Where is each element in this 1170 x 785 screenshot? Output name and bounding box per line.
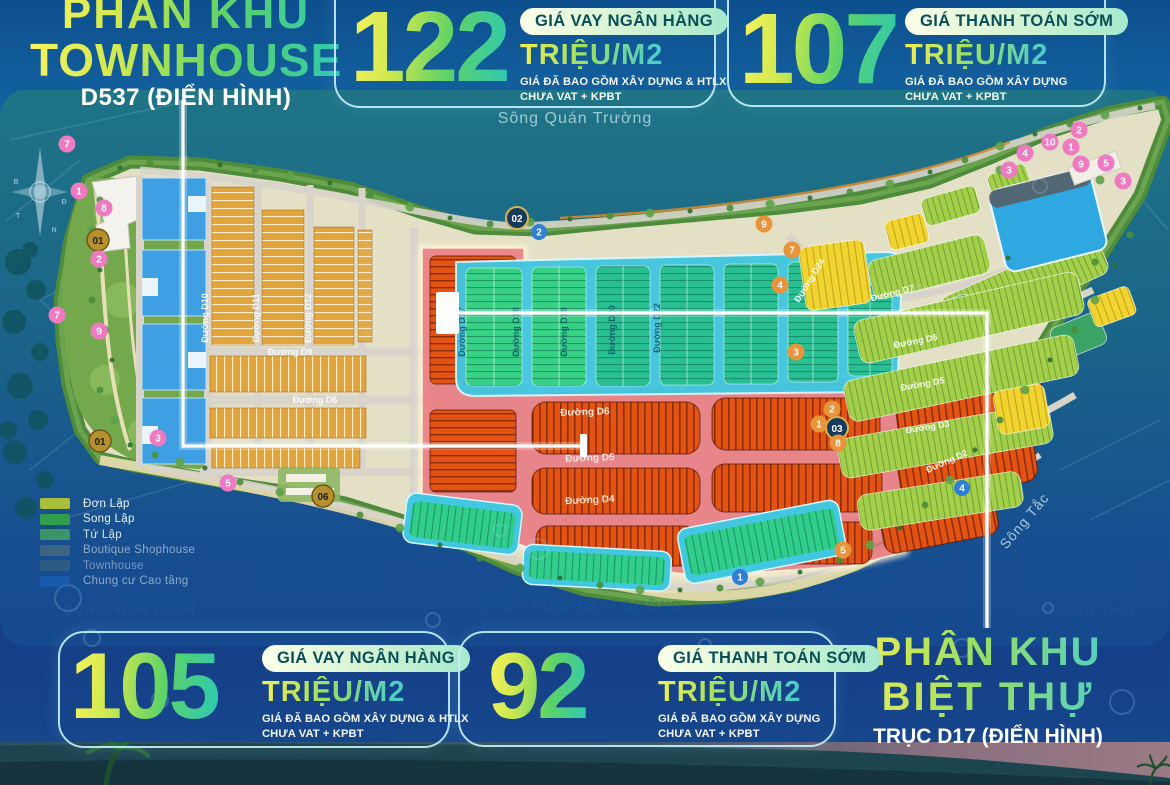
svg-text:1: 1 xyxy=(1068,143,1074,154)
tree xyxy=(176,458,185,467)
tree xyxy=(448,216,453,221)
map-legend: Đơn Lập Song Lập Tứ Lập Boutique Shophou… xyxy=(40,496,195,589)
svg-text:2: 2 xyxy=(536,228,542,239)
tree xyxy=(1021,386,1030,395)
title-townhouse: PHÂN KHU TOWNHOUSE D537 (ĐIỂN HÌNH) xyxy=(30,0,342,110)
svg-text:4: 4 xyxy=(959,484,965,495)
tree xyxy=(886,180,895,189)
price-badge: GIÁ THANH TOÁN SỚM xyxy=(658,645,881,672)
tree xyxy=(252,167,259,174)
legend-item-townhouse: Townhouse xyxy=(40,558,195,574)
river-label-top: Sông Quán Trường xyxy=(498,110,653,127)
tree xyxy=(111,416,120,425)
svg-text:5: 5 xyxy=(840,546,846,557)
tree xyxy=(727,205,734,212)
tree xyxy=(276,488,285,497)
tree xyxy=(766,200,775,209)
svg-text:1: 1 xyxy=(816,420,822,431)
tree xyxy=(688,209,693,214)
tree xyxy=(928,170,933,175)
svg-text:3: 3 xyxy=(1006,166,1012,177)
tree xyxy=(487,221,494,228)
legend-swatch xyxy=(40,498,70,509)
svg-text:2: 2 xyxy=(829,405,835,416)
tree xyxy=(516,564,525,573)
price-unit: TRIỆU/M2 xyxy=(658,676,801,709)
tree xyxy=(678,588,683,593)
legend-label: Đơn Lập xyxy=(83,498,130,510)
title-villa: PHÂN KHU BIỆT THỰ TRỤC D17 (ĐIỂN HÌNH) xyxy=(842,630,1134,748)
tree xyxy=(98,268,103,273)
svg-text:B: B xyxy=(13,179,18,186)
faint-park-label: CÔNG VIÊN NGHỈ DƯỠNG xyxy=(480,598,683,613)
svg-text:Đ: Đ xyxy=(61,199,66,206)
tree xyxy=(607,213,614,220)
legend-item-song-lap: Song Lập xyxy=(40,512,195,528)
legend-label: Tứ Lập xyxy=(83,529,122,541)
tree xyxy=(118,166,123,171)
legend-swatch xyxy=(40,529,70,540)
svg-text:4: 4 xyxy=(1022,149,1028,160)
price-note1: GIÁ ĐÃ BAO GỒM XÂY DỰNG & HTLX xyxy=(520,76,727,88)
street-label: Đường D5 xyxy=(565,452,615,465)
title-townhouse-line2: TOWNHOUSE xyxy=(30,37,342,84)
street-label: Đường D10 xyxy=(200,293,210,342)
tree xyxy=(973,448,978,453)
tree xyxy=(597,582,604,589)
tree xyxy=(717,585,724,592)
price-badge: GIÁ THANH TOÁN SỚM xyxy=(905,8,1128,35)
svg-text:1: 1 xyxy=(76,187,82,198)
svg-text:9: 9 xyxy=(1078,160,1084,171)
tree xyxy=(1033,132,1038,137)
tree xyxy=(147,160,154,167)
tree xyxy=(1101,111,1110,120)
legend-item-don-lap: Đơn Lập xyxy=(40,496,195,512)
legend-item-chung-cu: Chung cư Cao tầng xyxy=(40,574,195,590)
legend-swatch xyxy=(40,576,70,587)
tree xyxy=(558,576,563,581)
svg-text:8: 8 xyxy=(101,204,107,215)
tree xyxy=(798,570,803,575)
legend-swatch xyxy=(40,545,70,556)
tree xyxy=(152,452,159,459)
poster-root: Đường D10 Đường D11 Đường D12 Đường D9 Đ… xyxy=(0,0,1170,785)
townhouse-district xyxy=(210,187,372,468)
tree xyxy=(1127,232,1134,239)
tree xyxy=(1096,176,1105,185)
tree xyxy=(203,466,208,471)
title-townhouse-subtitle: D537 (ĐIỂN HÌNH) xyxy=(30,86,342,110)
price-card-early-payment-villa: 92 GIÁ THANH TOÁN SỚM TRIỆU/M2 GIÁ ĐÃ BA… xyxy=(458,631,836,747)
tree xyxy=(89,297,96,304)
title-villa-line2: BIỆT THỰ xyxy=(842,675,1134,720)
tree xyxy=(367,192,374,199)
zone-badge: 01 xyxy=(87,229,109,251)
zone-badge: 06 xyxy=(312,485,334,507)
callout-endcap xyxy=(580,434,587,457)
tree xyxy=(438,543,443,548)
tree xyxy=(477,555,484,562)
svg-text:2: 2 xyxy=(1076,126,1082,137)
legend-swatch xyxy=(40,560,70,571)
svg-text:9: 9 xyxy=(96,327,102,338)
price-unit: TRIỆU/M2 xyxy=(262,676,405,709)
tree xyxy=(1138,106,1143,111)
price-card-bank-loan-townhouse: 122 GIÁ VAY NGÂN HÀNG TRIỆU/M2 GIÁ ĐÃ BA… xyxy=(334,0,716,108)
callout-lot-marker xyxy=(436,292,459,334)
tree xyxy=(218,163,223,168)
bottom-photo-strip xyxy=(0,742,1170,785)
tree xyxy=(997,417,1004,424)
tree xyxy=(1006,256,1011,261)
legend-swatch xyxy=(40,514,70,525)
tree xyxy=(110,358,115,363)
tree xyxy=(128,443,133,448)
price-note2: CHƯA VAT + KPBT xyxy=(905,91,1007,103)
price-value: 107 xyxy=(739,2,897,97)
tree xyxy=(357,512,364,519)
tree xyxy=(568,217,573,222)
price-badge: GIÁ VAY NGÂN HÀNG xyxy=(520,8,728,35)
price-note2: CHƯA VAT + KPBT xyxy=(520,91,622,103)
svg-text:5: 5 xyxy=(225,479,231,490)
price-badge: GIÁ VAY NGÂN HÀNG xyxy=(262,645,470,672)
tree xyxy=(866,541,875,550)
street-label: Đường D6 xyxy=(293,395,337,405)
street-label: Đường D12 xyxy=(303,293,313,342)
tree xyxy=(328,181,333,186)
svg-text:7: 7 xyxy=(789,246,795,257)
title-villa-subtitle: TRỤC D17 (ĐIỂN HÌNH) xyxy=(842,725,1134,749)
price-value: 105 xyxy=(70,641,218,730)
svg-text:8: 8 xyxy=(835,439,841,450)
price-note1: GIÁ ĐÃ BAO GỒM XÂY DỰNG & HTLX xyxy=(262,713,469,725)
zone-badge: 02 xyxy=(506,207,528,229)
price-card-early-payment-townhouse: 107 GIÁ THANH TOÁN SỚM TRIỆU/M2 GIÁ ĐÃ B… xyxy=(727,0,1106,107)
price-note1: GIÁ ĐÃ BAO GỒM XÂY DỰNG xyxy=(658,713,820,725)
svg-text:T: T xyxy=(16,213,21,220)
price-note2: CHƯA VAT + KPBT xyxy=(262,728,364,740)
svg-text:7: 7 xyxy=(54,311,60,322)
tree xyxy=(922,502,929,509)
price-unit: TRIỆU/M2 xyxy=(520,39,663,72)
price-unit: TRIỆU/M2 xyxy=(905,39,1048,72)
faint-park-label: CÔNG VIÊN OSEN xyxy=(64,602,197,617)
tree xyxy=(406,203,415,212)
legend-item-boutique-shophouse: Boutique Shophouse xyxy=(40,543,195,559)
legend-label: Townhouse xyxy=(83,560,144,572)
tree xyxy=(847,189,854,196)
legend-label: Boutique Shophouse xyxy=(83,544,195,556)
tree xyxy=(1091,296,1100,305)
price-value: 92 xyxy=(488,641,587,730)
tree xyxy=(946,476,955,485)
svg-text:3: 3 xyxy=(793,348,799,359)
svg-text:06: 06 xyxy=(317,492,329,503)
svg-text:01: 01 xyxy=(92,236,104,247)
street-label: Đường D11 xyxy=(251,294,261,343)
svg-text:02: 02 xyxy=(511,214,523,225)
svg-text:10: 10 xyxy=(1044,138,1056,149)
street-label: Đường D9 xyxy=(268,347,312,357)
svg-text:9: 9 xyxy=(761,220,767,231)
zone-badge: 01 xyxy=(89,430,111,452)
legend-label: Chung cư Cao tầng xyxy=(83,575,189,587)
legend-label: Song Lập xyxy=(83,513,135,525)
tree xyxy=(646,209,655,218)
svg-text:2: 2 xyxy=(96,255,102,266)
tree xyxy=(996,142,1005,151)
svg-text:5: 5 xyxy=(1103,159,1109,170)
tree xyxy=(808,196,813,201)
price-note1: GIÁ ĐÃ BAO GỒM XÂY DỰNG xyxy=(905,76,1067,88)
compass-icon: BĐTN xyxy=(8,146,72,238)
tree xyxy=(237,479,244,486)
legend-item-tu-lap: Tứ Lập xyxy=(40,527,195,543)
faint-park-label: ĐẬP SINH THÁI xyxy=(1022,602,1136,617)
price-value: 122 xyxy=(350,0,508,95)
title-townhouse-line1: PHÂN KHU xyxy=(30,0,342,37)
svg-text:3: 3 xyxy=(155,434,161,445)
tree xyxy=(97,387,104,394)
tree xyxy=(1113,263,1118,268)
svg-text:01: 01 xyxy=(94,437,106,448)
tree xyxy=(396,524,405,533)
tree xyxy=(286,172,295,181)
svg-text:1: 1 xyxy=(737,573,743,584)
tree xyxy=(756,578,765,587)
tree xyxy=(1092,259,1099,266)
title-villa-line1: PHÂN KHU xyxy=(842,630,1134,675)
tree xyxy=(962,157,969,164)
tree xyxy=(898,526,903,531)
svg-text:N: N xyxy=(51,227,56,234)
tree xyxy=(1048,358,1053,363)
tree xyxy=(1072,327,1079,334)
svg-text:03: 03 xyxy=(831,424,843,435)
price-note2: CHƯA VAT + KPBT xyxy=(658,728,760,740)
svg-text:3: 3 xyxy=(1120,177,1126,188)
price-card-bank-loan-villa: 105 GIÁ VAY NGÂN HÀNG TRIỆU/M2 GIÁ ĐÃ BA… xyxy=(58,631,450,748)
svg-text:4: 4 xyxy=(777,281,783,292)
tree xyxy=(636,586,645,595)
street-label: Đường D6 xyxy=(560,406,610,419)
